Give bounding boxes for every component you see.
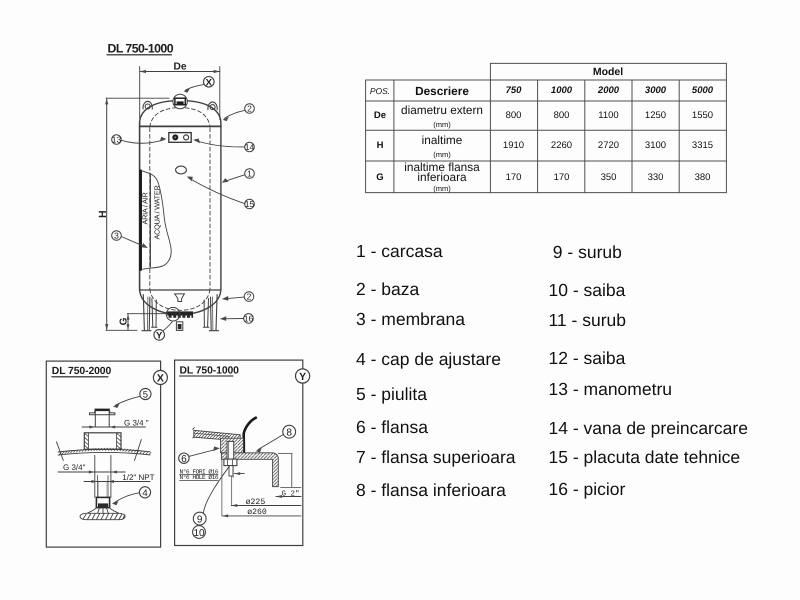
svg-text:X: X (206, 77, 213, 88)
svg-text:G 3/4": G 3/4" (63, 463, 86, 472)
svg-text:DL 750-1000: DL 750-1000 (108, 42, 174, 56)
svg-text:9: 9 (197, 514, 203, 525)
svg-text:4: 4 (142, 488, 147, 499)
svg-text:13: 13 (112, 135, 122, 145)
svg-text:ACQUA / WATER: ACQUA / WATER (153, 186, 162, 240)
svg-text:1: 1 (247, 169, 252, 179)
svg-text:De: De (174, 62, 187, 73)
svg-text:DL 750-2000: DL 750-2000 (52, 366, 112, 377)
svg-text:2: 2 (247, 292, 252, 302)
svg-text:Y: Y (156, 330, 163, 341)
svg-text:8: 8 (286, 428, 292, 439)
svg-text:5: 5 (143, 390, 148, 401)
svg-text:Y: Y (299, 371, 306, 383)
svg-text:6: 6 (181, 454, 187, 465)
svg-text:2: 2 (247, 104, 252, 114)
svg-text:ARIA / AIR: ARIA / AIR (141, 193, 150, 225)
svg-text:15: 15 (245, 199, 255, 209)
svg-text:16: 16 (244, 314, 254, 324)
svg-text:10: 10 (193, 528, 205, 539)
svg-text:X: X (157, 373, 164, 385)
svg-text:G 3/4 ": G 3/4 " (124, 418, 149, 427)
svg-text:14: 14 (245, 142, 255, 152)
svg-text:1/2" NPT: 1/2" NPT (122, 473, 154, 482)
svg-text:DL 750-1000: DL 750-1000 (180, 366, 240, 377)
svg-text:3: 3 (114, 231, 119, 241)
